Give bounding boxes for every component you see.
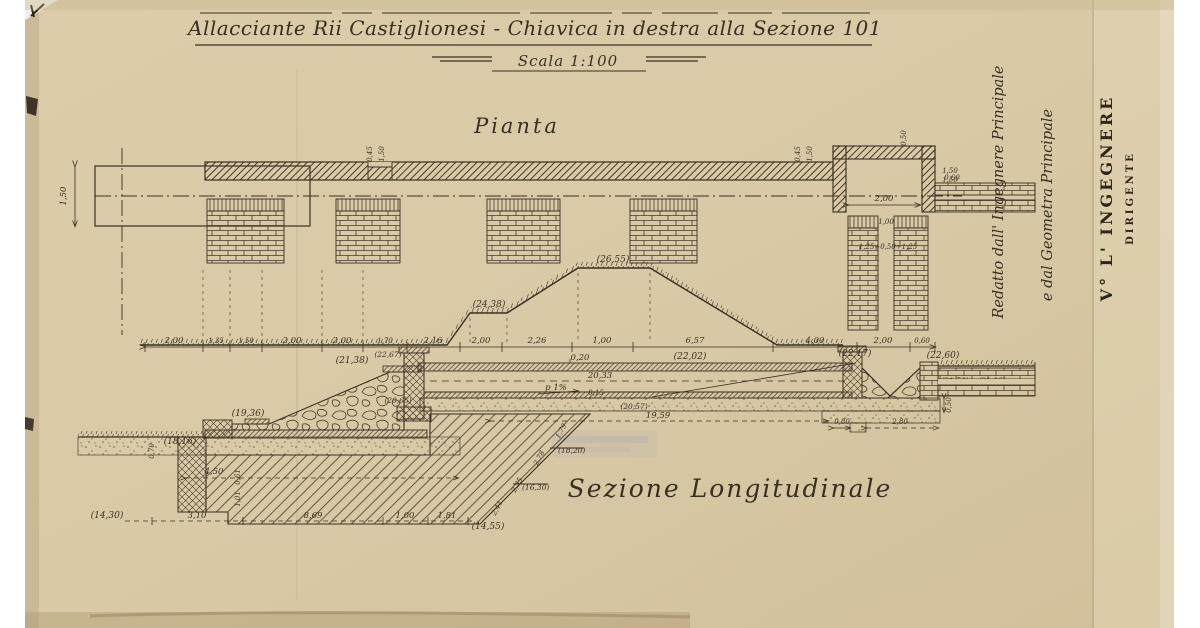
elev-label: (26,55) bbox=[597, 254, 630, 265]
stamp-line-1: V° L' INGEGNERE bbox=[1097, 95, 1116, 303]
chain-dim: 2,00 bbox=[282, 336, 303, 346]
v-dim: 0,61 bbox=[234, 469, 242, 485]
elev-label: (22,67) bbox=[374, 350, 401, 359]
side-note-surveyor: e dal Geometra Principale bbox=[1040, 109, 1056, 301]
drawing-scale: Scala 1:100 bbox=[518, 52, 618, 70]
dim-slab-thickness: 0,20 bbox=[571, 353, 591, 363]
plan-step-dim: 1,50 bbox=[806, 146, 814, 162]
gravel-bed bbox=[420, 398, 940, 411]
v-dim: 1,01 bbox=[234, 491, 242, 507]
scanned-drawing-sheet: Allacciante Rii Castiglionesi - Chiavica… bbox=[0, 0, 1200, 628]
chain-dim: 6,57 bbox=[686, 336, 706, 346]
paper-background bbox=[0, 0, 1200, 628]
slope-label: p 1% bbox=[545, 383, 567, 393]
bottom-dim: 8,69 bbox=[304, 511, 324, 521]
subsoil-band bbox=[78, 437, 460, 455]
chain-dim: 2,00 bbox=[332, 336, 353, 346]
chain-dim: 2,00 bbox=[471, 336, 492, 346]
elev-label: (18,20) bbox=[558, 446, 585, 455]
elev-label: (14,30) bbox=[91, 510, 124, 521]
chain-dim: 4,00 bbox=[805, 336, 826, 346]
bottom-dim: 1,81 bbox=[438, 511, 457, 521]
chain-dim: 1,50 bbox=[238, 337, 254, 345]
plan-pier-gap-dim: 1,00 bbox=[878, 218, 894, 226]
plan-label: Pianta bbox=[473, 114, 560, 138]
bottom-dim: 3,10 bbox=[188, 511, 208, 521]
plan-channel-dim: 0,60 bbox=[944, 174, 960, 182]
culvert-top-slab bbox=[418, 363, 852, 371]
plan-wall-bar bbox=[205, 162, 833, 180]
plan-step-dim: 0,45 bbox=[366, 146, 374, 162]
plan-step-dim: 0,45 bbox=[794, 146, 802, 162]
elev-label: (21,38) bbox=[336, 355, 369, 366]
chain-dim: 2,16 bbox=[423, 336, 444, 346]
chain-dim: 2,00 bbox=[164, 336, 185, 346]
elev-label: (22,60) bbox=[927, 350, 960, 361]
chain-dim: 1,35 bbox=[208, 337, 224, 345]
dim-basin: 2,80 bbox=[891, 418, 908, 426]
dim-foundation-width: 4,50 bbox=[204, 467, 225, 477]
elev-label: (19,36) bbox=[232, 408, 265, 419]
chain-dim: 2,00 bbox=[873, 336, 894, 346]
dim-basin-depth: 0,50 bbox=[945, 397, 953, 413]
elev-label: (22,02) bbox=[674, 351, 707, 362]
plan-step-dim: 1,50 bbox=[378, 146, 386, 162]
dim-interior-length: 20,33 bbox=[587, 371, 612, 381]
elev-label: (14,55) bbox=[472, 521, 505, 532]
elev-label: (16,30) bbox=[522, 483, 549, 492]
ink-blot bbox=[26, 96, 38, 116]
ink-blot bbox=[25, 417, 34, 431]
culvert-floor-slab bbox=[424, 392, 852, 398]
dim-gap: 0,80 bbox=[834, 418, 850, 426]
dim-floor-length: 19,59 bbox=[646, 411, 671, 421]
drawing-canvas: Allacciante Rii Castiglionesi - Chiavica… bbox=[0, 0, 1200, 628]
section-label: Sezione Longitudinale bbox=[568, 474, 893, 503]
elev-label: (24,38) bbox=[473, 299, 506, 310]
chain-dim: 1,00 bbox=[593, 336, 613, 346]
bottom-dim: 1,00 bbox=[396, 511, 416, 521]
outlet-headwall bbox=[843, 352, 862, 398]
stamp-line-2: DIRIGENTE bbox=[1125, 151, 1136, 245]
drawing-title: Allacciante Rii Castiglionesi - Chiavica… bbox=[186, 16, 882, 40]
plan-dim-left: 1,50 bbox=[59, 186, 69, 206]
chain-dim: 2,26 bbox=[527, 336, 548, 346]
plan-chamber-dim: 2,00 bbox=[874, 194, 895, 204]
chain-dim: 1,70 bbox=[377, 337, 393, 345]
plan-dim-small: 0,50 bbox=[900, 130, 908, 146]
chain-dim: 0,60 bbox=[914, 337, 930, 345]
plan-piers-dim: 1,25÷0,50÷1,25 bbox=[859, 243, 918, 251]
dim-floor-thickness: 0,15 bbox=[588, 389, 604, 397]
v-dim: 0,70 bbox=[148, 443, 156, 459]
